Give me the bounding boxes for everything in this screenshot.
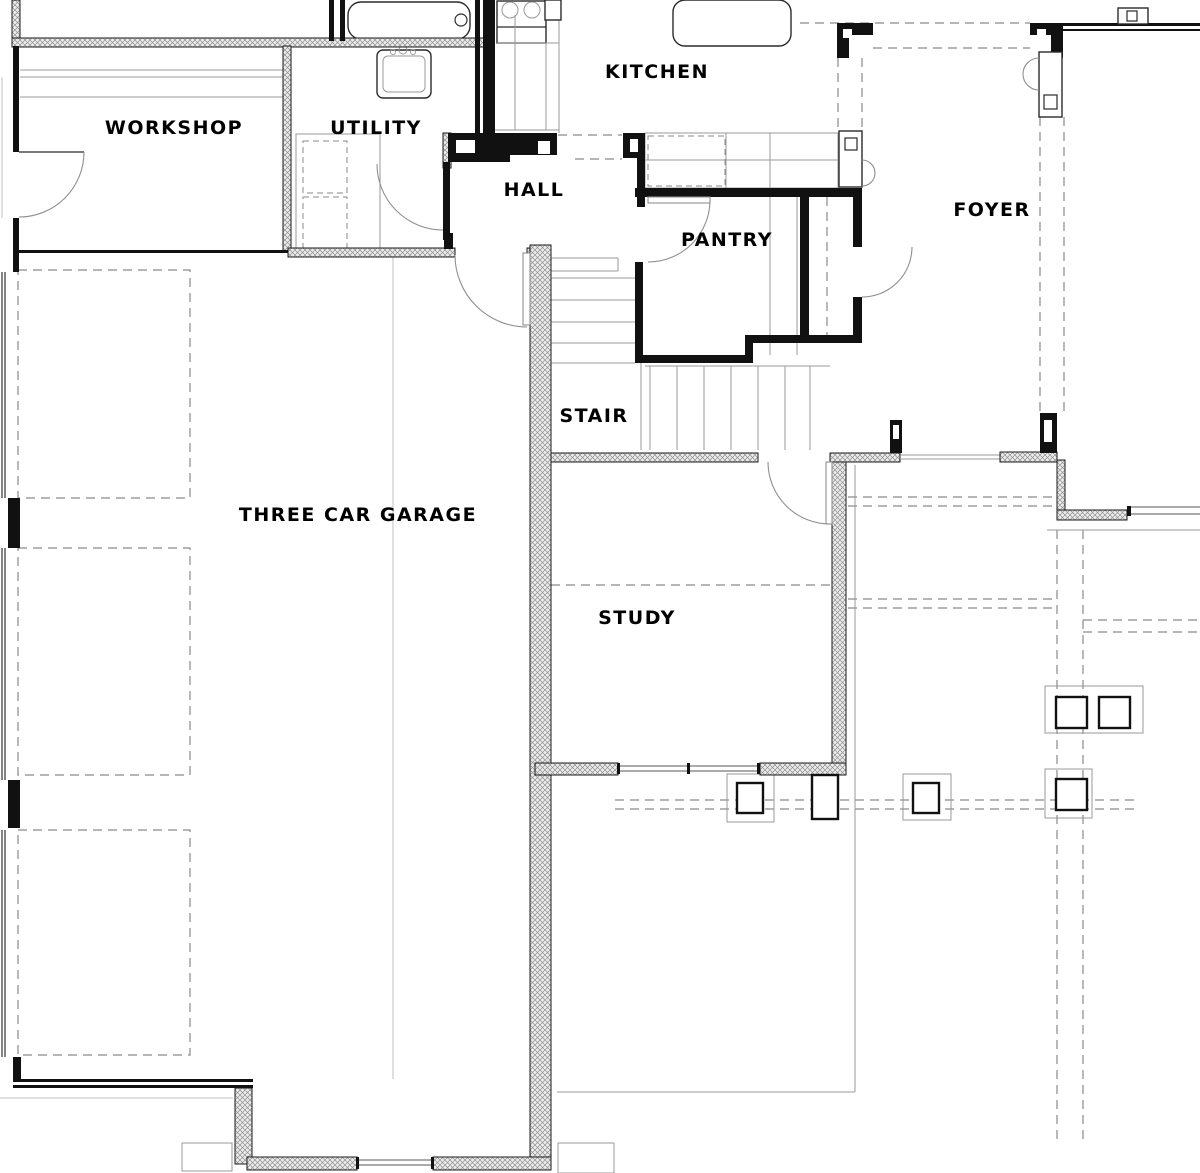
closet-foyer-door <box>862 247 912 297</box>
room-label-hall: HALL <box>504 179 565 201</box>
piers <box>839 8 1148 187</box>
kitchen-counter-east <box>645 133 838 188</box>
interior-walls <box>8 0 1200 1088</box>
corner-pier <box>812 775 838 819</box>
porch-post <box>913 783 939 813</box>
room-label-foyer: FOYER <box>953 199 1030 221</box>
washer-dryer-dashed <box>296 134 380 250</box>
porch-post <box>1056 697 1087 728</box>
porch-posts <box>737 697 1130 819</box>
kitchen-east-pier <box>839 131 875 187</box>
east-sill-window <box>1127 506 1200 516</box>
room-label-kitchen: KITCHEN <box>605 61 709 83</box>
kitchen-island <box>673 0 791 46</box>
study-window <box>617 763 760 774</box>
range-fixture <box>497 1 546 43</box>
workshop-shelves <box>20 70 283 97</box>
porch-outlines <box>182 455 1200 1173</box>
chimney-bump <box>545 0 561 20</box>
stoop-left <box>182 1143 232 1171</box>
garage-hall-door <box>455 253 530 327</box>
garage-door-panels <box>2 272 5 1057</box>
utility-sink-fixture <box>377 46 431 98</box>
porch-post <box>737 783 763 813</box>
utility-door <box>377 164 443 230</box>
porch-post <box>1099 697 1130 728</box>
floor-plan: WORKSHOP UTILITY KITCHEN HALL PANTRY FOY… <box>0 0 1200 1173</box>
room-label-utility: UTILITY <box>330 117 422 139</box>
room-label-stair: STAIR <box>559 405 628 427</box>
garage-south-window <box>356 1157 434 1169</box>
room-labels: WORKSHOP UTILITY KITCHEN HALL PANTRY FOY… <box>105 61 1031 629</box>
fixtures <box>20 0 838 355</box>
room-label-workshop: WORKSHOP <box>105 117 243 139</box>
pantry-shelves <box>770 197 797 355</box>
bathtub-fixture <box>348 2 470 39</box>
foyer-east-pier <box>1023 52 1062 117</box>
room-label-study: STUDY <box>598 607 676 629</box>
windows <box>356 506 1200 1169</box>
workshop-door <box>19 152 84 217</box>
stoop-right <box>558 1143 614 1173</box>
study-door <box>768 462 832 524</box>
porch-post <box>1056 779 1087 810</box>
garage-parking-bays <box>0 77 393 1098</box>
room-label-pantry: PANTRY <box>681 229 773 251</box>
room-label-garage: THREE CAR GARAGE <box>239 504 477 526</box>
floor-plan-canvas: WORKSHOP UTILITY KITCHEN HALL PANTRY FOY… <box>0 0 1200 1173</box>
top-wall-bump <box>1118 8 1148 24</box>
